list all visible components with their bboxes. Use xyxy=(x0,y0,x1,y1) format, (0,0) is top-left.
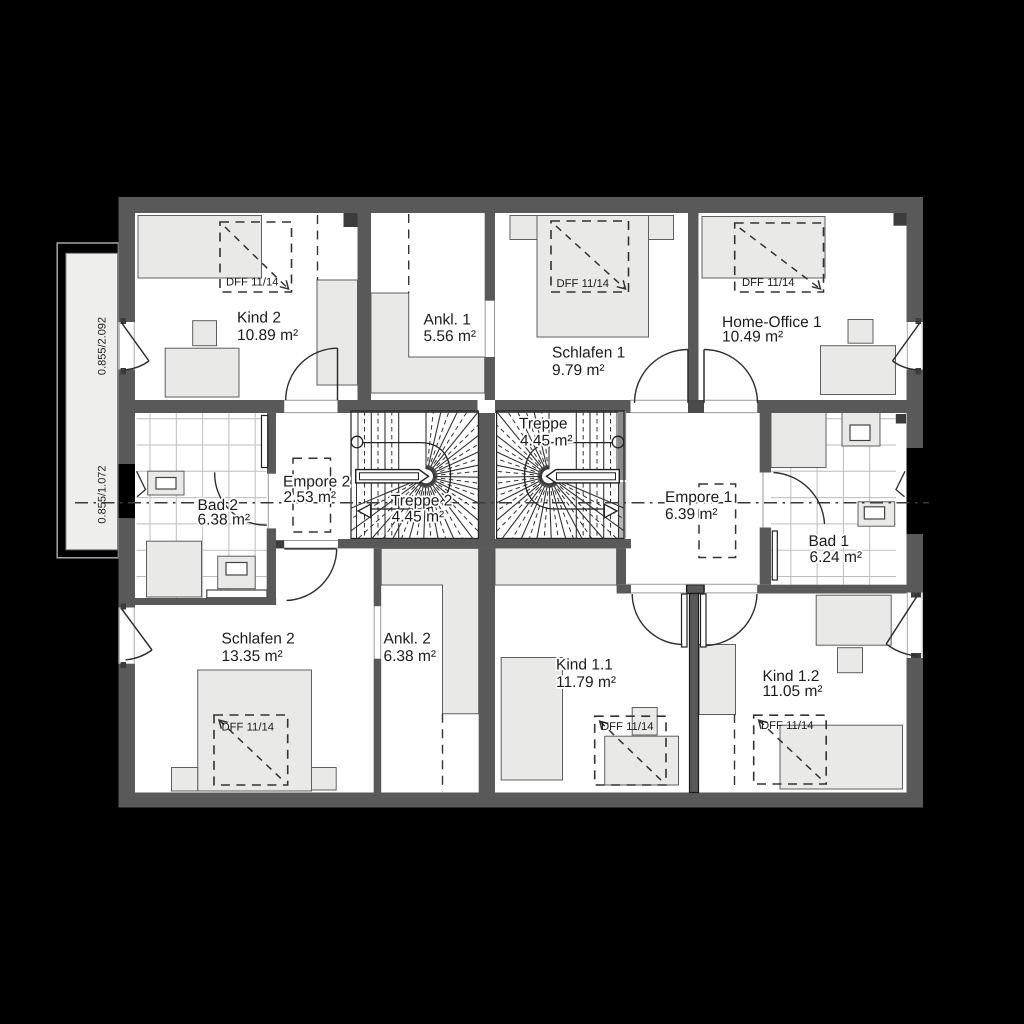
svg-text:0.855/2.092: 0.855/2.092 xyxy=(97,317,109,375)
svg-text:6.38 m²: 6.38 m² xyxy=(384,648,437,665)
svg-text:10.89 m²: 10.89 m² xyxy=(237,327,298,344)
svg-text:11.05 m²: 11.05 m² xyxy=(763,683,823,700)
svg-text:6.38 m²: 6.38 m² xyxy=(198,512,251,529)
svg-text:Empore 2: Empore 2 xyxy=(283,474,350,491)
svg-text:6.39 m²: 6.39 m² xyxy=(665,506,718,523)
svg-text:Bad 1: Bad 1 xyxy=(809,533,850,550)
svg-text:Treppe 2: Treppe 2 xyxy=(391,493,452,510)
svg-text:Treppe: Treppe xyxy=(519,416,568,433)
svg-text:Schlafen 2: Schlafen 2 xyxy=(222,631,295,648)
svg-text:Schlafen 1: Schlafen 1 xyxy=(552,345,625,362)
svg-text:2.53 m²: 2.53 m² xyxy=(284,489,337,506)
svg-text:Empore 1: Empore 1 xyxy=(665,489,732,506)
svg-text:6.24 m²: 6.24 m² xyxy=(810,549,863,566)
svg-text:DFF 11/14: DFF 11/14 xyxy=(557,278,610,290)
svg-text:DFF 11/14: DFF 11/14 xyxy=(226,277,279,289)
svg-text:10.49 m²: 10.49 m² xyxy=(722,329,783,346)
svg-text:DFF 11/14: DFF 11/14 xyxy=(601,721,654,733)
svg-text:Kind 2: Kind 2 xyxy=(237,310,281,327)
svg-text:9.79 m²: 9.79 m² xyxy=(552,362,605,379)
svg-text:4.45 m²: 4.45 m² xyxy=(520,433,573,450)
svg-text:0.855/1.072: 0.855/1.072 xyxy=(97,465,109,523)
svg-text:DFF 11/14: DFF 11/14 xyxy=(761,720,814,732)
svg-text:Kind 1.1: Kind 1.1 xyxy=(556,657,613,674)
svg-text:Ankl. 1: Ankl. 1 xyxy=(424,312,471,329)
svg-text:11.79 m²: 11.79 m² xyxy=(556,674,616,691)
svg-text:13.35 m²: 13.35 m² xyxy=(222,648,283,665)
svg-text:4.45 m²: 4.45 m² xyxy=(392,509,445,526)
svg-text:DFF 11/14: DFF 11/14 xyxy=(222,722,275,734)
svg-text:Ankl. 2: Ankl. 2 xyxy=(384,631,431,648)
svg-text:DFF 11/14: DFF 11/14 xyxy=(742,277,795,289)
svg-text:5.56 m²: 5.56 m² xyxy=(424,328,477,345)
